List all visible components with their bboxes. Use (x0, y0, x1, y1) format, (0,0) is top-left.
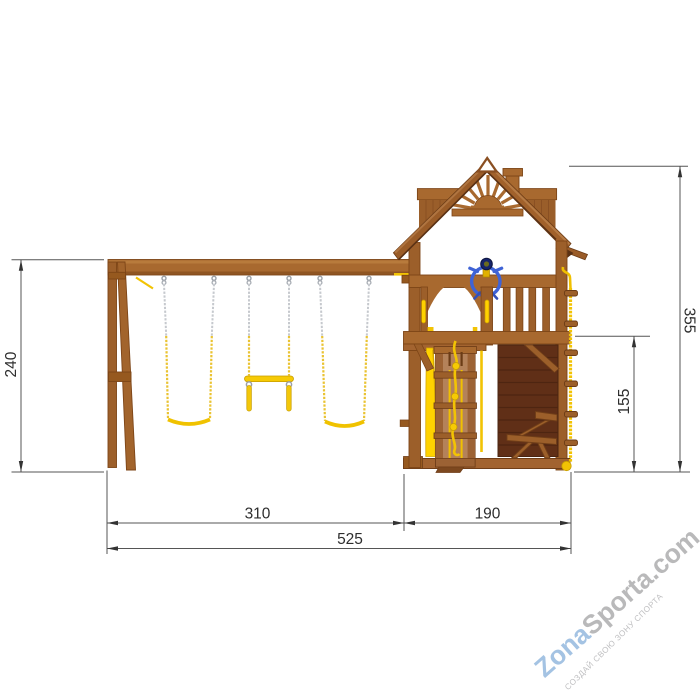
svg-text:525: 525 (337, 531, 363, 548)
svg-text:310: 310 (245, 506, 271, 523)
svg-text:355: 355 (680, 308, 697, 334)
svg-text:190: 190 (475, 506, 501, 523)
svg-text:240: 240 (3, 351, 20, 377)
svg-text:155: 155 (616, 389, 633, 415)
